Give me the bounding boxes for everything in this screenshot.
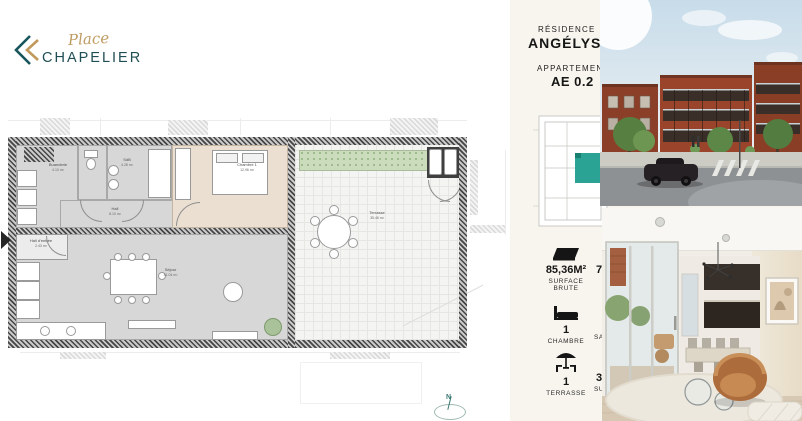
brochure-page: Place CHAPELIER (0, 0, 802, 421)
kitchen-column (16, 262, 40, 281)
apartment-label: APPARTEMENT (537, 64, 609, 73)
plant (264, 318, 282, 336)
wall-inner (16, 228, 288, 234)
residence-label: RÉSIDENCE (538, 25, 595, 34)
ghost-wall (60, 352, 106, 359)
chapelier-logo-icon (12, 33, 42, 67)
room-label: Séjour41.04 m² (148, 267, 193, 277)
side-table (223, 282, 243, 302)
wall-bottom (8, 340, 467, 348)
toilet (84, 150, 98, 158)
ghost-wall (390, 118, 438, 135)
stat-terrasse: 1 TERRASSE (528, 350, 604, 397)
room-label: Chambre 112.96 m² (222, 162, 272, 172)
entrance-marker (1, 231, 11, 249)
ghost-wall (40, 118, 70, 135)
apartment-code: AE 0.2 (551, 74, 594, 89)
exterior-render-photo (600, 0, 802, 206)
brand-script-text: Place (68, 29, 110, 49)
interior-render-photo (602, 208, 802, 421)
shower (148, 149, 171, 198)
ghost-wall (470, 160, 478, 215)
room-label: Buanderie4.10 m² (38, 162, 78, 172)
terrace-table (317, 215, 351, 249)
ghost-wall (470, 225, 505, 233)
wall-terrace-divider (288, 137, 295, 348)
wardrobe (175, 148, 191, 200)
bed-icon (553, 304, 579, 322)
area-icon (551, 246, 581, 262)
stat-surface: 85,36M² SURFACE BRUTE (528, 246, 604, 292)
room-label: SdB4.28 m² (112, 157, 142, 167)
planter-strip (299, 150, 429, 171)
wall-top (8, 137, 467, 145)
parasol-icon (552, 350, 580, 374)
brand-name-text: CHAPELIER (42, 50, 142, 66)
stat-chambre: 1 CHAMBRE (528, 304, 604, 345)
floorplan: Buanderie4.10 m² SdB4.28 m² Hall8.10 m² … (0, 110, 510, 421)
kitchen-counter (16, 322, 106, 340)
room-label: Terrasse35.46 m² (352, 210, 402, 220)
ghost-wall (330, 352, 390, 359)
ghost-wall (168, 120, 208, 135)
room-label: Hall8.10 m² (95, 206, 135, 216)
residence-name: ANGÉLYS (528, 35, 601, 51)
compass-north-icon: N (428, 394, 474, 421)
credenza (212, 331, 258, 340)
wall-right (459, 137, 467, 348)
room-label: Hall d'entrée2.43 m² (16, 238, 66, 248)
tv-unit (128, 320, 176, 329)
brand-block: Place CHAPELIER (0, 0, 220, 90)
